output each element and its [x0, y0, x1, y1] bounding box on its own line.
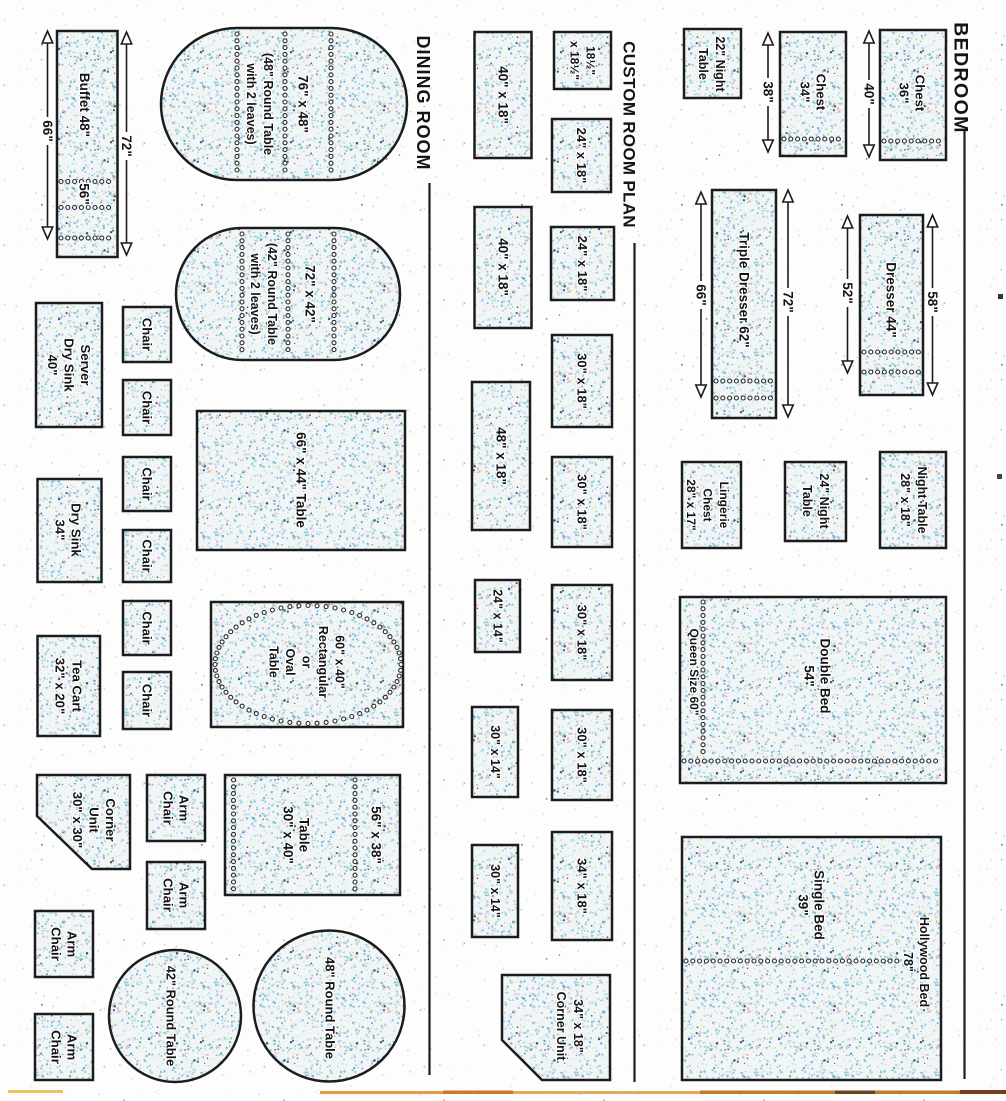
- svg-text:60" x 40": 60" x 40": [333, 635, 347, 689]
- svg-text:48" Round Table: 48" Round Table: [323, 957, 338, 1059]
- svg-text:Chest: Chest: [814, 74, 829, 111]
- svg-text:Chair: Chair: [160, 791, 175, 825]
- svg-text:76" x 48": 76" x 48": [296, 75, 311, 133]
- svg-text:Chest: Chest: [913, 75, 928, 112]
- svg-text:58": 58": [925, 291, 940, 312]
- svg-text:Dresser 44": Dresser 44": [884, 262, 899, 337]
- svg-text:Chair: Chair: [160, 878, 175, 912]
- svg-text:34" x 18": 34" x 18": [571, 999, 585, 1053]
- svg-text:Double Bed: Double Bed: [818, 638, 833, 713]
- svg-text:24" Night: 24" Night: [817, 473, 831, 529]
- svg-text:BEDROOM: BEDROOM: [950, 22, 972, 134]
- svg-text:24" x 18": 24" x 18": [575, 236, 590, 292]
- svg-text:Hollywood Bed: Hollywood Bed: [917, 917, 931, 1007]
- svg-text:66": 66": [40, 120, 55, 141]
- svg-text:Chair: Chair: [140, 611, 155, 644]
- svg-text:30" x 30": 30" x 30": [70, 792, 85, 849]
- svg-text:32" x 20": 32" x 20": [53, 658, 68, 715]
- svg-text:Dry Sink: Dry Sink: [69, 503, 84, 557]
- svg-text:30" x 18": 30" x 18": [575, 353, 590, 409]
- svg-text:78": 78": [901, 952, 915, 972]
- svg-text:52": 52": [840, 282, 855, 303]
- svg-text:Table: Table: [267, 646, 281, 678]
- svg-text:Chair: Chair: [48, 1030, 63, 1064]
- svg-text:56" x 38": 56" x 38": [369, 806, 384, 864]
- svg-text:DINING ROOM: DINING ROOM: [413, 36, 433, 171]
- svg-text:40": 40": [862, 83, 877, 104]
- svg-text:48" x 18": 48" x 18": [494, 427, 509, 485]
- svg-text:with 2 leaves): with 2 leaves): [244, 62, 258, 144]
- svg-text:72": 72": [119, 135, 134, 156]
- svg-text:30" x 18": 30" x 18": [575, 474, 590, 530]
- svg-text:Chair: Chair: [140, 318, 155, 351]
- svg-text:Buffet 48": Buffet 48": [77, 73, 92, 137]
- svg-text:Arm: Arm: [65, 1034, 80, 1060]
- svg-text:30" x 18": 30" x 18": [575, 727, 590, 783]
- svg-text:42" Round Table: 42" Round Table: [164, 966, 179, 1066]
- svg-text:Triple Dresser 62": Triple Dresser 62": [737, 232, 752, 347]
- svg-text:(48" Round Table: (48" Round Table: [261, 53, 275, 155]
- svg-text:30" x 14": 30" x 14": [488, 725, 502, 779]
- svg-text:Dry Sink: Dry Sink: [62, 338, 77, 392]
- svg-text:Chair: Chair: [140, 391, 155, 424]
- svg-text:Tea Cart: Tea Cart: [69, 660, 84, 712]
- svg-text:Oval: Oval: [283, 648, 297, 675]
- svg-text:40" x 18": 40" x 18": [496, 66, 511, 124]
- svg-text:with 2 leaves): with 2 leaves): [248, 252, 262, 334]
- svg-text:Arm: Arm: [65, 931, 80, 957]
- svg-text:(42" Round Table: (42" Round Table: [265, 243, 279, 345]
- svg-text:CUSTOM ROOM PLAN: CUSTOM ROOM PLAN: [620, 41, 639, 228]
- svg-text:72": 72": [781, 291, 796, 312]
- svg-text:Queen Size 60": Queen Size 60": [687, 628, 701, 715]
- svg-text:28" x 17": 28" x 17": [684, 479, 698, 530]
- svg-text:or: or: [300, 656, 314, 669]
- svg-text:Chest: Chest: [701, 488, 715, 521]
- svg-text:30" x 40": 30" x 40": [280, 806, 295, 864]
- svg-text:72" x 42": 72" x 42": [303, 265, 318, 323]
- svg-text:Chair: Chair: [48, 927, 63, 961]
- svg-text:Unit: Unit: [87, 807, 102, 833]
- svg-text:39": 39": [795, 894, 810, 915]
- svg-text:Lingerie: Lingerie: [717, 482, 731, 529]
- svg-text:66" x 44" Table: 66" x 44" Table: [294, 432, 309, 528]
- svg-text:66": 66": [694, 284, 709, 305]
- svg-text:Single Bed: Single Bed: [812, 870, 827, 940]
- svg-text:Arm: Arm: [177, 882, 192, 908]
- svg-text:Arm: Arm: [177, 795, 192, 821]
- svg-text:40": 40": [45, 355, 60, 376]
- svg-text:24" x 18": 24" x 18": [574, 128, 589, 184]
- svg-text:Chair: Chair: [140, 467, 155, 500]
- svg-text:Rectangular: Rectangular: [316, 626, 330, 698]
- svg-text:Corner: Corner: [103, 798, 118, 841]
- svg-text:Table: Table: [800, 485, 814, 517]
- svg-text:36": 36": [896, 83, 911, 104]
- svg-text:18½": 18½": [584, 46, 598, 75]
- svg-text:Chair: Chair: [140, 539, 155, 572]
- svg-text:38": 38": [761, 81, 776, 102]
- svg-text:Night Table: Night Table: [915, 466, 929, 533]
- svg-text:x 18½": x 18½": [568, 41, 582, 80]
- svg-text:34" x 18": 34" x 18": [575, 858, 590, 914]
- svg-text:24" x 14": 24" x 14": [491, 589, 505, 643]
- svg-text:Chair: Chair: [140, 684, 155, 717]
- svg-text:Corner Unit: Corner Unit: [554, 992, 568, 1062]
- svg-text:30" x 14": 30" x 14": [488, 864, 502, 918]
- svg-text:Table: Table: [297, 818, 312, 853]
- svg-text:Server: Server: [78, 344, 93, 385]
- svg-text:28" x 18": 28" x 18": [898, 473, 912, 527]
- svg-text:40" x 18": 40" x 18": [496, 238, 511, 296]
- svg-text:30" x 18": 30" x 18": [575, 605, 590, 661]
- svg-text:34": 34": [52, 520, 67, 541]
- svg-text:56": 56": [77, 183, 92, 204]
- svg-text:34": 34": [797, 82, 812, 103]
- svg-text:Table: Table: [696, 48, 710, 80]
- svg-text:54": 54": [801, 665, 816, 686]
- svg-text:22" Night: 22" Night: [713, 36, 727, 92]
